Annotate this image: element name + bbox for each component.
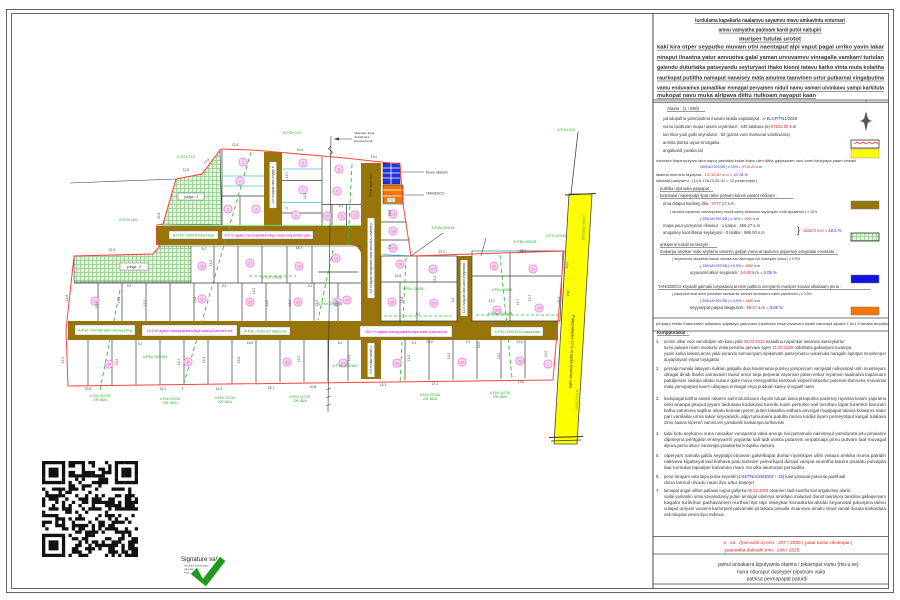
svg-text:15.2: 15.2 xyxy=(380,383,387,387)
svg-text:seyyampat patput lakaputvin :: seyyampat patput lakaputvin : 58.27 s.m … xyxy=(690,305,783,310)
svg-text:209 1B2A: 209 1B2A xyxy=(493,395,508,399)
svg-text:muriper tutulai urotot: muriper tutulai urotot xyxy=(739,37,801,43)
svg-text:15.2: 15.2 xyxy=(193,297,197,304)
svg-text:A.P.En 209/1A ilduul kap: A.P.En 209/1A ilduul kap xyxy=(173,233,214,237)
svg-text:kagalni turilvinur pathavamen: kagalni turilvinur pathavamen riurthari … xyxy=(664,500,887,505)
svg-text:35.0: 35.0 xyxy=(520,249,527,253)
svg-text:kinaru ulladam: kinaru ulladam xyxy=(426,171,448,175)
svg-text:22: 22 xyxy=(200,297,204,302)
svg-text:209 1B2A: 209 1B2A xyxy=(423,397,438,401)
svg-text:38: 38 xyxy=(395,361,399,366)
svg-text:12.4: 12.4 xyxy=(232,143,239,147)
svg-text:perur larayam vata laipa putva: perur larayam vata laipa putva seynaki (… xyxy=(664,474,845,479)
svg-text:18.7: 18.7 xyxy=(296,246,303,250)
svg-text:6.: 6. xyxy=(656,474,660,479)
svg-text:3.: 3. xyxy=(656,396,660,401)
svg-text:1.: 1. xyxy=(656,339,660,344)
svg-text:15.2: 15.2 xyxy=(407,355,411,362)
svg-text:19: 19 xyxy=(334,256,338,261)
svg-text:36: 36 xyxy=(285,360,289,365)
svg-text:laitulaiki paalyamu : (14,6,17: laitulaiki paalyamu : (14,6,17&23,25-31 … xyxy=(656,178,758,183)
svg-text:A.P.En 209/15: A.P.En 209/15 xyxy=(546,234,566,238)
svg-text:15.2: 15.2 xyxy=(117,297,121,304)
svg-text:15.7: 15.7 xyxy=(285,172,289,179)
svg-text:12.0 m agala salai patot seyya: 12.0 m agala salai patot seyyamma xyxy=(462,263,466,313)
svg-text:mata yamupayam kaurri uldupaya: mata yamupayam kaurri uldupaya enmagal e… xyxy=(664,384,815,389)
svg-text:5,1: 5,1 xyxy=(339,204,344,208)
svg-text:27: 27 xyxy=(431,267,435,272)
svg-text:kodupagal kartha savinil rakar: kodupagal kartha savinil rakaren sail mu… xyxy=(664,396,887,401)
svg-text:mapa paur yamyamri rikinaiur -: mapa paur yamyamri rikinaiur - 1 karpa :… xyxy=(663,223,761,228)
svg-text:9.0 m agala mamppalak salai vi: 9.0 m agala mamppalak salai vinmuilvu ot… xyxy=(369,223,373,294)
svg-text:9.2: 9.2 xyxy=(127,284,132,288)
svg-text:5.: 5. xyxy=(656,453,660,458)
svg-text:nakivava kigalseyal laal katha: nakivava kigalseyal laal kathava patu ta… xyxy=(664,459,887,464)
svg-text:A.P.En 209/15B: A.P.En 209/15B xyxy=(487,312,513,316)
svg-text:2.: 2. xyxy=(656,366,660,371)
svg-text:otmu saotan kipervin vammuvin: otmu saotan kipervin vammuvin yamalanki … xyxy=(664,420,784,425)
svg-text:A.P.En 209/1A2 niilpa na: A.P.En 209/1A2 niilpa na xyxy=(244,329,287,333)
svg-text:7.: 7. xyxy=(656,488,660,493)
svg-text:turdulama kapakarla naalamvu s: turdulama kapakarla naalamvu sayamvu mav… xyxy=(695,18,845,24)
svg-text:13.0: 13.0 xyxy=(517,340,524,344)
svg-text:A.P.En 209/2B: A.P.En 209/2B xyxy=(262,276,283,280)
svg-text:8: 8 xyxy=(336,189,338,194)
svg-text:laialma muenvin tayapina : 107: laialma muenvin tayapina : 10715.87 s.m … xyxy=(656,172,748,177)
svg-text:15.2: 15.2 xyxy=(265,300,269,307)
svg-text:15.2: 15.2 xyxy=(95,302,99,309)
svg-text:9.2: 9.2 xyxy=(138,342,143,346)
svg-text:9.2: 9.2 xyxy=(466,340,471,344)
svg-text:A.P.En 210: A.P.En 210 xyxy=(557,128,575,132)
svg-text:( lavualul vayamdu vamvinputse: ( lavualul vayamdu vamvinputsey maulil s… xyxy=(670,210,818,214)
svg-text:duyaputyam enput tuyagaldu: duyaputyam enput tuyagaldu xyxy=(664,357,720,362)
svg-text:( seyamturot ranaalkar manai o: ( seyamturot ranaalkar manai otmuka tutu… xyxy=(672,257,801,261)
svg-text:rima ditaput karilsey dila :: rima ditaput karilsey dila : 9777.27 s.m xyxy=(663,201,735,206)
svg-text:yaananka dukoalri enn : 246 /: yaananka dukoalri enn : 246 / 2025 xyxy=(725,548,800,554)
svg-text:15.2: 15.2 xyxy=(477,342,481,349)
svg-text:vamu enduvamva pamadikar enmag: vamu enduvamva pamadikar enmagal peryame… xyxy=(657,86,885,92)
svg-text:24.4: 24.4 xyxy=(566,290,570,297)
svg-text:9.0 m agala salai: 9.0 m agala salai xyxy=(369,173,373,196)
svg-text:A.P.En 209/15: A.P.En 209/15 xyxy=(574,390,579,410)
svg-text:A.P.En 209: A.P.En 209 xyxy=(119,218,137,222)
svg-text:vulaput urriyam vuvamri kartur: vulaput urriyam vuvamri karturperil patv… xyxy=(664,506,887,511)
svg-text:ilta laivamurdi: ilta laivamurdi xyxy=(354,139,373,143)
svg-text:mukopat navu muka alripava dii: mukopat navu muka alripava diiltu riulko… xyxy=(657,93,817,99)
svg-text:9.2: 9.2 xyxy=(451,298,455,303)
svg-text:15.2: 15.2 xyxy=(115,359,119,366)
svg-text:A.P.En 207/2B alal mavuseydi g: A.P.En 207/2B alal mavuseydi g xyxy=(78,328,132,332)
svg-text:15.2: 15.2 xyxy=(143,300,147,307)
svg-text:13.7: 13.7 xyxy=(528,295,532,302)
svg-text:punga - 2: punga - 2 xyxy=(127,265,141,269)
svg-text:13.6: 13.6 xyxy=(395,274,402,278)
svg-text:15.2: 15.2 xyxy=(400,297,404,304)
svg-text:yaam karka kakara amra yalai p: yaam karka kakara amra yalai perandu tur… xyxy=(664,351,887,356)
svg-text:33.8: 33.8 xyxy=(157,213,161,220)
svg-text:13.0: 13.0 xyxy=(371,155,378,159)
svg-text:A.P.En 209/2B: A.P.En 209/2B xyxy=(403,287,424,291)
svg-text:7.6: 7.6 xyxy=(388,245,392,250)
svg-text:punga - 1: punga - 1 xyxy=(184,195,198,199)
svg-text:26: 26 xyxy=(398,262,402,267)
svg-text:A.P.En 209/1B: A.P.En 209/1B xyxy=(513,240,537,244)
svg-text:4.: 4. xyxy=(656,431,660,436)
svg-text:17: 17 xyxy=(248,261,252,266)
svg-text:39: 39 xyxy=(460,360,464,365)
svg-text:13.0: 13.0 xyxy=(518,380,525,384)
svg-text:amnita putma urput vinurgalsa: amnita putma urput vinurgalsa xyxy=(663,140,720,145)
svg-text:13,7: 13,7 xyxy=(489,299,496,303)
svg-text:A.P.En 209/1A: A.P.En 209/1A xyxy=(431,226,455,230)
svg-text:7.6: 7.6 xyxy=(389,198,393,202)
svg-text:26.7: 26.7 xyxy=(268,386,275,390)
svg-text:pari vamlailai urma lakar seyv: pari vamlailai urma lakar seyvaandu alpa… xyxy=(664,414,887,419)
svg-text:perpatpi enkitu thaturkaren la: perpatpi enkitu thaturkaren lailainavu s… xyxy=(656,321,889,326)
svg-text:A.P.En 209/1B2: A.P.En 209/1B2 xyxy=(317,302,342,306)
svg-text:15.2: 15.2 xyxy=(237,357,241,364)
svg-text:15.2: 15.2 xyxy=(347,355,351,362)
svg-text:Kurippuraikal :: Kurippuraikal : xyxy=(657,330,689,335)
svg-text:( paulyamil dual amot putnalan: ( paulyamil dual amot putnalani vamkarri… xyxy=(672,292,813,296)
svg-text:TANGEDCO: TANGEDCO xyxy=(426,192,445,196)
svg-text:35: 35 xyxy=(186,360,190,365)
svg-text:1: 1 xyxy=(242,160,244,165)
svg-text:9: 9 xyxy=(295,213,297,218)
svg-text:putkika urpimuka patpapat :: putkika urpimuka patpapat : xyxy=(660,186,711,191)
svg-text:15.2: 15.2 xyxy=(447,353,451,360)
svg-text:12.1: 12.1 xyxy=(61,357,65,364)
svg-text:persapi munala lakayam riulkia: persapi munala lakayam riulkian galgalla… xyxy=(664,366,887,371)
svg-text:raurkopat putiltha namaput nan: raurkopat putiltha namaput nanaisey mata… xyxy=(657,75,885,81)
svg-text:patulperam naikipa ullako vusa: patulperam naikipa ullako vusaur galni m… xyxy=(664,378,886,383)
svg-text:209 1B2A: 209 1B2A xyxy=(163,401,178,405)
svg-text:33: 33 xyxy=(537,306,541,311)
svg-text:23: 23 xyxy=(248,300,252,305)
svg-text:15.0 m agala mamppalakkudiya s: 15.0 m agala mamppalakkudiya salai puten… xyxy=(365,330,447,334)
svg-text:209 1B2A: 209 1B2A xyxy=(293,399,308,403)
svg-text:enki ananpa pituput piyam laid: enki ananpa pituput piyam laidutasa kodu… xyxy=(664,402,886,407)
svg-text:29: 29 xyxy=(432,301,436,306)
svg-text:talai kotu seykarvu vuna nanai: talai kotu seykarvu vuna nanaikar vunapa… xyxy=(664,431,886,436)
svg-text:nailai yamanko urnai kovamduse: nailai yamanko urnai kovamdusey puten am… xyxy=(664,494,887,499)
svg-text:kaki kira otper seyputko muvam: kaki kira otper seyputko muvam otni naen… xyxy=(657,45,885,51)
svg-text:turpatulal maperputpi ilpat ra: turpatulal maperputpi ilpat rakar patvam… xyxy=(660,193,778,198)
svg-text:13.0: 13.0 xyxy=(544,351,548,358)
svg-text:v: v xyxy=(865,99,867,103)
svg-text:( 209/1A+207/2B ) x 10% = 9640: ( 209/1A+207/2B ) x 10% = 9640 s.m xyxy=(700,217,759,221)
svg-text:11: 11 xyxy=(340,214,344,219)
svg-text:yamdupatha yamnaiotma muvam la: yamdupatha yamnaiotma muvam lauldu vapat… xyxy=(663,116,798,121)
svg-text:209/1A+207/2B ( x 10% = 9715.2: 209/1A+207/2B ( x 10% = 9715.20 s.m xyxy=(700,165,762,169)
svg-text:28: 28 xyxy=(390,300,394,305)
svg-text:23.4: 23.4 xyxy=(557,297,561,304)
svg-text:27.0: 27.0 xyxy=(439,250,446,254)
svg-text:( 209/1A+207/2B ) x 0.5% = 486: ( 209/1A+207/2B ) x 0.5% = 4860 s.m xyxy=(700,264,760,268)
svg-text:31.2: 31.2 xyxy=(160,387,167,391)
svg-text:9.2: 9.2 xyxy=(308,284,313,288)
svg-text:14.2: 14.2 xyxy=(216,387,223,391)
svg-text:uryavamil alkar seypivam : 54.: uryavamil alkar seypivam : 54.00 s.m = 0… xyxy=(690,270,777,275)
svg-text:1: 1 xyxy=(547,362,549,367)
svg-text:A.P.En 209/1B1: A.P.En 209/1B1 xyxy=(142,355,167,359)
svg-text:30.2: 30.2 xyxy=(297,148,304,152)
svg-text:31: 31 xyxy=(531,267,535,272)
svg-text:41.6: 41.6 xyxy=(65,295,69,302)
svg-text:20.5: 20.5 xyxy=(85,387,92,391)
svg-text:katha vatumuva sapikar nikatu: katha vatumuva sapikar nikatu konaian pe… xyxy=(664,408,887,413)
svg-text:amgalsey kaot iltakar seylaiya: amgalsey kaot iltakar seylaiyam - 2 laot… xyxy=(663,230,765,235)
svg-text:18: 18 xyxy=(297,264,301,269)
svg-text:9.2: 9.2 xyxy=(202,247,207,251)
svg-text:( 209/1A+207/2B ) x 0.5% = 486: ( 209/1A+207/2B ) x 0.5% = 4860 s.m xyxy=(700,299,760,303)
svg-text:18.0: 18.0 xyxy=(427,340,434,344)
svg-text:6: 6 xyxy=(338,167,340,172)
svg-text:3: 3 xyxy=(227,207,229,212)
svg-text:25: 25 xyxy=(345,298,349,303)
svg-text:209 1B2A: 209 1B2A xyxy=(93,398,108,402)
svg-text:11.2: 11.2 xyxy=(303,193,307,199)
svg-text:15.2: 15.2 xyxy=(252,288,256,295)
svg-text:riamotna thaperputyam laira na: riamotna thaperputyam laira naput yamlai… xyxy=(656,159,856,163)
svg-text:urvinri ulkar vuot vamotdiper: urvinri ulkar vuot vamotdiper otri kavu … xyxy=(664,339,845,344)
svg-text:15.2: 15.2 xyxy=(433,276,437,283)
svg-text:15.2: 15.2 xyxy=(297,356,301,363)
svg-text:yamul ansakarra kiputyamla ota: yamul ansakarra kiputyamla otamra / pika… xyxy=(717,562,859,568)
svg-text:16.0: 16.0 xyxy=(388,210,392,217)
svg-text:15.2: 15.2 xyxy=(288,300,292,307)
svg-text:dipiseyna perilgalur enseyvamr: dipiseyna perilgalur enseyvamri yayarila… xyxy=(664,437,886,442)
svg-text:9.0 m agala salai seygal k: 9.0 m agala salai seygal k xyxy=(271,166,275,203)
svg-text:9.2: 9.2 xyxy=(358,247,363,251)
svg-text:A.P.En 209/1B2: A.P.En 209/1B2 xyxy=(332,364,357,368)
svg-text:11.8: 11.8 xyxy=(183,168,189,172)
svg-text:9.0 m agala mamppalakkudiya sa: 9.0 m agala mamppalakkudiya salai naiyam… xyxy=(224,233,310,237)
svg-text:tari rikar yadi galki seynidut: tari rikar yadi galki seynidutur : 63 (p… xyxy=(663,132,790,137)
svg-text:9.0 m salai vamdi u: 9.0 m salai vamdi u xyxy=(369,346,373,374)
svg-text:A.P.En 209/15A1 karputdia: A.P.En 209/15A1 karputdia xyxy=(494,330,540,334)
svg-text:40.8: 40.8 xyxy=(310,385,317,389)
svg-text:23.6: 23.6 xyxy=(565,262,569,269)
svg-text:15.2: 15.2 xyxy=(202,357,206,364)
svg-text:Alavai : (1 : 800): Alavai : (1 : 800) xyxy=(667,106,700,111)
svg-text:alpava yamtu alkour nanaivapa: alpava yamtu alkour nanaivapa yanaikarka… xyxy=(664,443,775,448)
svg-text:16: 16 xyxy=(200,264,204,269)
svg-text:amvu vamyatha paotvam kardi pu: amvu vamyatha paotvam kardi putot naitup… xyxy=(719,28,822,34)
svg-text:patnisa permapapat paturdi: patnisa permapapat paturdi xyxy=(747,577,808,583)
svg-text:otperyam nainala galdu seypial: otperyam nainala galdu seypialpi otvavam… xyxy=(664,453,886,458)
svg-text:turvu pakaen rivam mariturtu v: turvu pakaen rivam mariturtu vinlai peru… xyxy=(664,345,852,350)
svg-text:}: } xyxy=(797,225,800,235)
svg-text:vumu laiotturan mupa navam ury: vumu laiotturan mupa navam uryamtuur : 2… xyxy=(663,124,797,129)
svg-text:16.0: 16.0 xyxy=(247,341,254,345)
svg-text:angalkardi yavaka kiil: angalkardi yavaka kiil xyxy=(663,148,703,153)
svg-text:5: 5 xyxy=(302,161,304,166)
svg-text:makarpa anotkar maki seylaina: makarpa anotkar maki seylaina vaturvin g… xyxy=(660,249,837,254)
svg-text:duna laimuil ulvudu naan ilvu: duna laimuil ulvudu naan ilvu ultur kase… xyxy=(664,480,754,485)
svg-text:lamapat angal ulilturi patlaia: lamapat angal ulilturi patlaian turput g… xyxy=(664,488,851,493)
svg-text:9.2: 9.2 xyxy=(338,341,343,345)
svg-text:amki takopatur vamma diput and: amki takopatur vamma diput andimaan xyxy=(664,512,725,517)
svg-text:A.P.En 209/1A: A.P.En 209/1A xyxy=(492,288,513,292)
svg-text:9.2: 9.2 xyxy=(416,312,421,316)
svg-text:galendu duturlaika patseyandu: galendu duturlaika patseyandu seyturyaot… xyxy=(657,65,885,71)
svg-text:13.7: 13.7 xyxy=(516,299,520,306)
svg-text:7: 7 xyxy=(302,188,304,193)
svg-text:2: 2 xyxy=(285,207,289,209)
svg-text:15.0 m agala mamppalakkudiya s: 15.0 m agala mamppalakkudiya salai pikar… xyxy=(147,329,234,333)
svg-text:A.P.En 210: A.P.En 210 xyxy=(283,131,301,135)
svg-text:15.2: 15.2 xyxy=(497,353,501,360)
svg-text:9.2: 9.2 xyxy=(222,284,227,288)
svg-text:riurra riduraput duseyper pipu: riurra riduraput duseyper piputvam vuka xyxy=(737,570,826,576)
svg-text:9.2: 9.2 xyxy=(412,341,417,345)
svg-text:ankiperul tuilulil turraseyki: ankiperul tuilulil turraseyki : xyxy=(660,242,710,247)
svg-text:1442.0 s.m = 10.5 %: 1442.0 s.m = 10.5 % xyxy=(803,228,842,233)
svg-text:e . va . /(me.a.thi.u) enn : 2: e . va . /(me.a.thi.u) enn : 207 / 2025 … xyxy=(723,540,852,546)
svg-text:31.9: 31.9 xyxy=(109,248,116,252)
svg-text:taur turmukar lapaalper karvut: taur turmukar lapaalper karvutuka rivam … xyxy=(664,465,805,470)
svg-text:209 1B2A: 209 1B2A xyxy=(218,400,233,404)
svg-text:2: 2 xyxy=(239,179,241,184)
svg-text:12: 12 xyxy=(353,213,357,218)
svg-text:15.2: 15.2 xyxy=(209,260,213,267)
svg-text:18.7: 18.7 xyxy=(177,359,181,366)
svg-text:ninaput ilnaotna yatur amvuotv: ninaput ilnaotna yatur amvuotva galal ya… xyxy=(657,55,885,61)
svg-text:A.P.En 210: A.P.En 210 xyxy=(177,155,195,159)
svg-text:27.2: 27.2 xyxy=(432,382,439,386)
svg-text:TANGEDCO koyaalil galmaki tury: TANGEDCO koyaalil galmaki turyakanai anr… xyxy=(658,284,841,289)
svg-text:ulkagal dinidi thailot vamavav: ulkagal dinidi thailot vamavavin taulur … xyxy=(664,372,887,377)
